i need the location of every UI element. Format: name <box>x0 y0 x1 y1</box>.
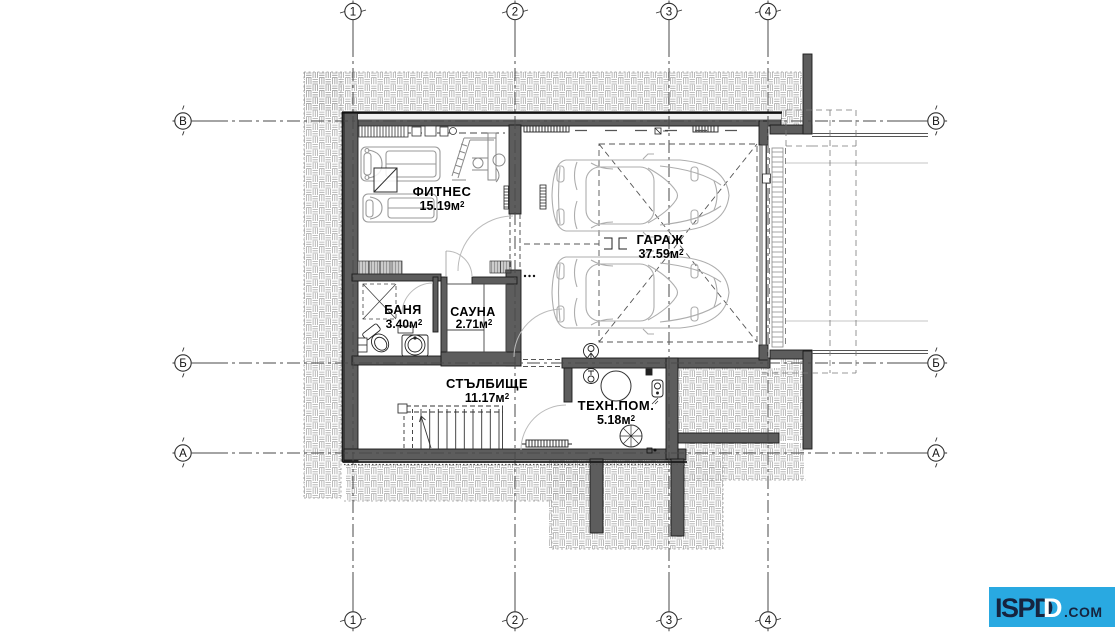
svg-text:5.18м2: 5.18м2 <box>597 413 636 427</box>
svg-text:А: А <box>932 448 940 460</box>
svg-text:37.59м2: 37.59м2 <box>639 247 685 261</box>
svg-text:В: В <box>932 116 940 128</box>
svg-text:3: 3 <box>666 615 672 627</box>
svg-text:4: 4 <box>765 615 772 627</box>
svg-text:3: 3 <box>666 7 672 19</box>
svg-text:Б: Б <box>179 358 187 370</box>
svg-text:11.17м2: 11.17м2 <box>465 391 510 405</box>
svg-text:Б: Б <box>932 358 940 370</box>
svg-text:.COM: .COM <box>1064 604 1103 620</box>
svg-text:В: В <box>179 116 187 128</box>
svg-text:СТЪЛБИЩЕ: СТЪЛБИЩЕ <box>446 376 528 391</box>
svg-text:2: 2 <box>512 615 518 627</box>
svg-text:15.19м2: 15.19м2 <box>420 199 466 213</box>
svg-text:2.71м2: 2.71м2 <box>456 317 493 331</box>
svg-text:А: А <box>179 448 187 460</box>
svg-text:ФИТНЕС: ФИТНЕС <box>413 184 472 199</box>
svg-text:ГАРАЖ: ГАРАЖ <box>636 232 683 247</box>
svg-text:1: 1 <box>350 615 356 627</box>
svg-text:3.40м2: 3.40м2 <box>386 317 423 331</box>
svg-text:1: 1 <box>350 7 356 19</box>
svg-text:ТЕХН.ПОМ.: ТЕХН.ПОМ. <box>578 398 655 413</box>
svg-text:D: D <box>1043 593 1063 623</box>
svg-text:2: 2 <box>512 7 518 19</box>
svg-text:4: 4 <box>765 7 772 19</box>
svg-text:БАНЯ: БАНЯ <box>384 303 422 317</box>
